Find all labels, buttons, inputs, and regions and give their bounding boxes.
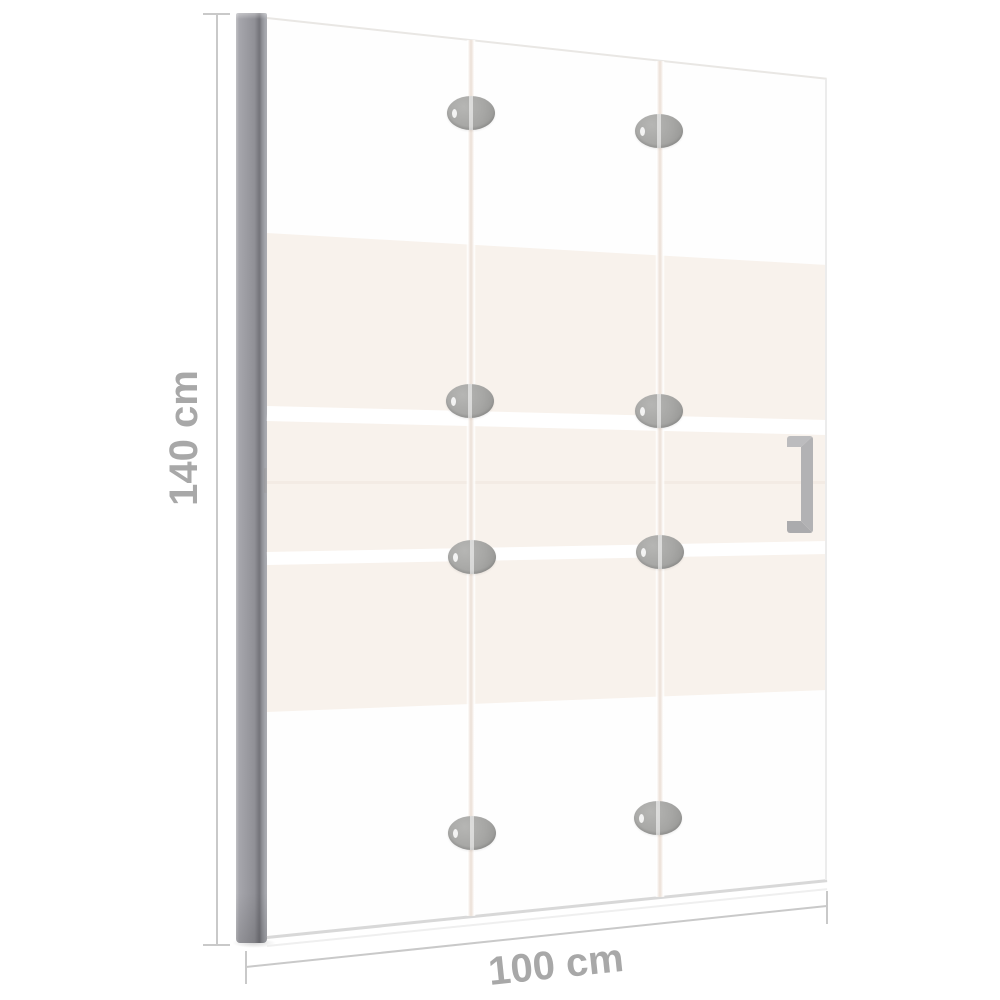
hinge-row3-right <box>636 535 684 569</box>
panel-divider-2 <box>655 61 665 897</box>
hinge-row1-right <box>635 114 683 148</box>
hinge-row3-left <box>448 540 496 574</box>
product-dimension-diagram: 140 cm 100 cm <box>0 0 1000 1000</box>
width-dimension-label: 100 cm <box>469 934 643 996</box>
door-handle <box>787 436 813 533</box>
hinge-row2-left <box>446 384 494 418</box>
height-dimension-cap-bottom <box>203 944 230 946</box>
band-seam-middle <box>267 481 827 484</box>
hinge-row1-left <box>447 96 495 130</box>
frosted-band <box>267 233 827 712</box>
hinge-row2-right <box>635 394 683 428</box>
wall-profile-bar <box>236 13 267 943</box>
panel-divider-1 <box>466 40 476 916</box>
height-dimension-label: 140 cm <box>162 358 206 518</box>
hinge-row4-left <box>448 816 496 850</box>
glass-right-edge <box>825 79 827 880</box>
height-dimension-line <box>216 14 218 945</box>
height-dimension-cap-top <box>203 13 230 15</box>
width-dimension-tick-left <box>245 951 247 984</box>
hinge-row4-right <box>634 801 682 835</box>
width-dimension-tick-right <box>826 891 828 924</box>
